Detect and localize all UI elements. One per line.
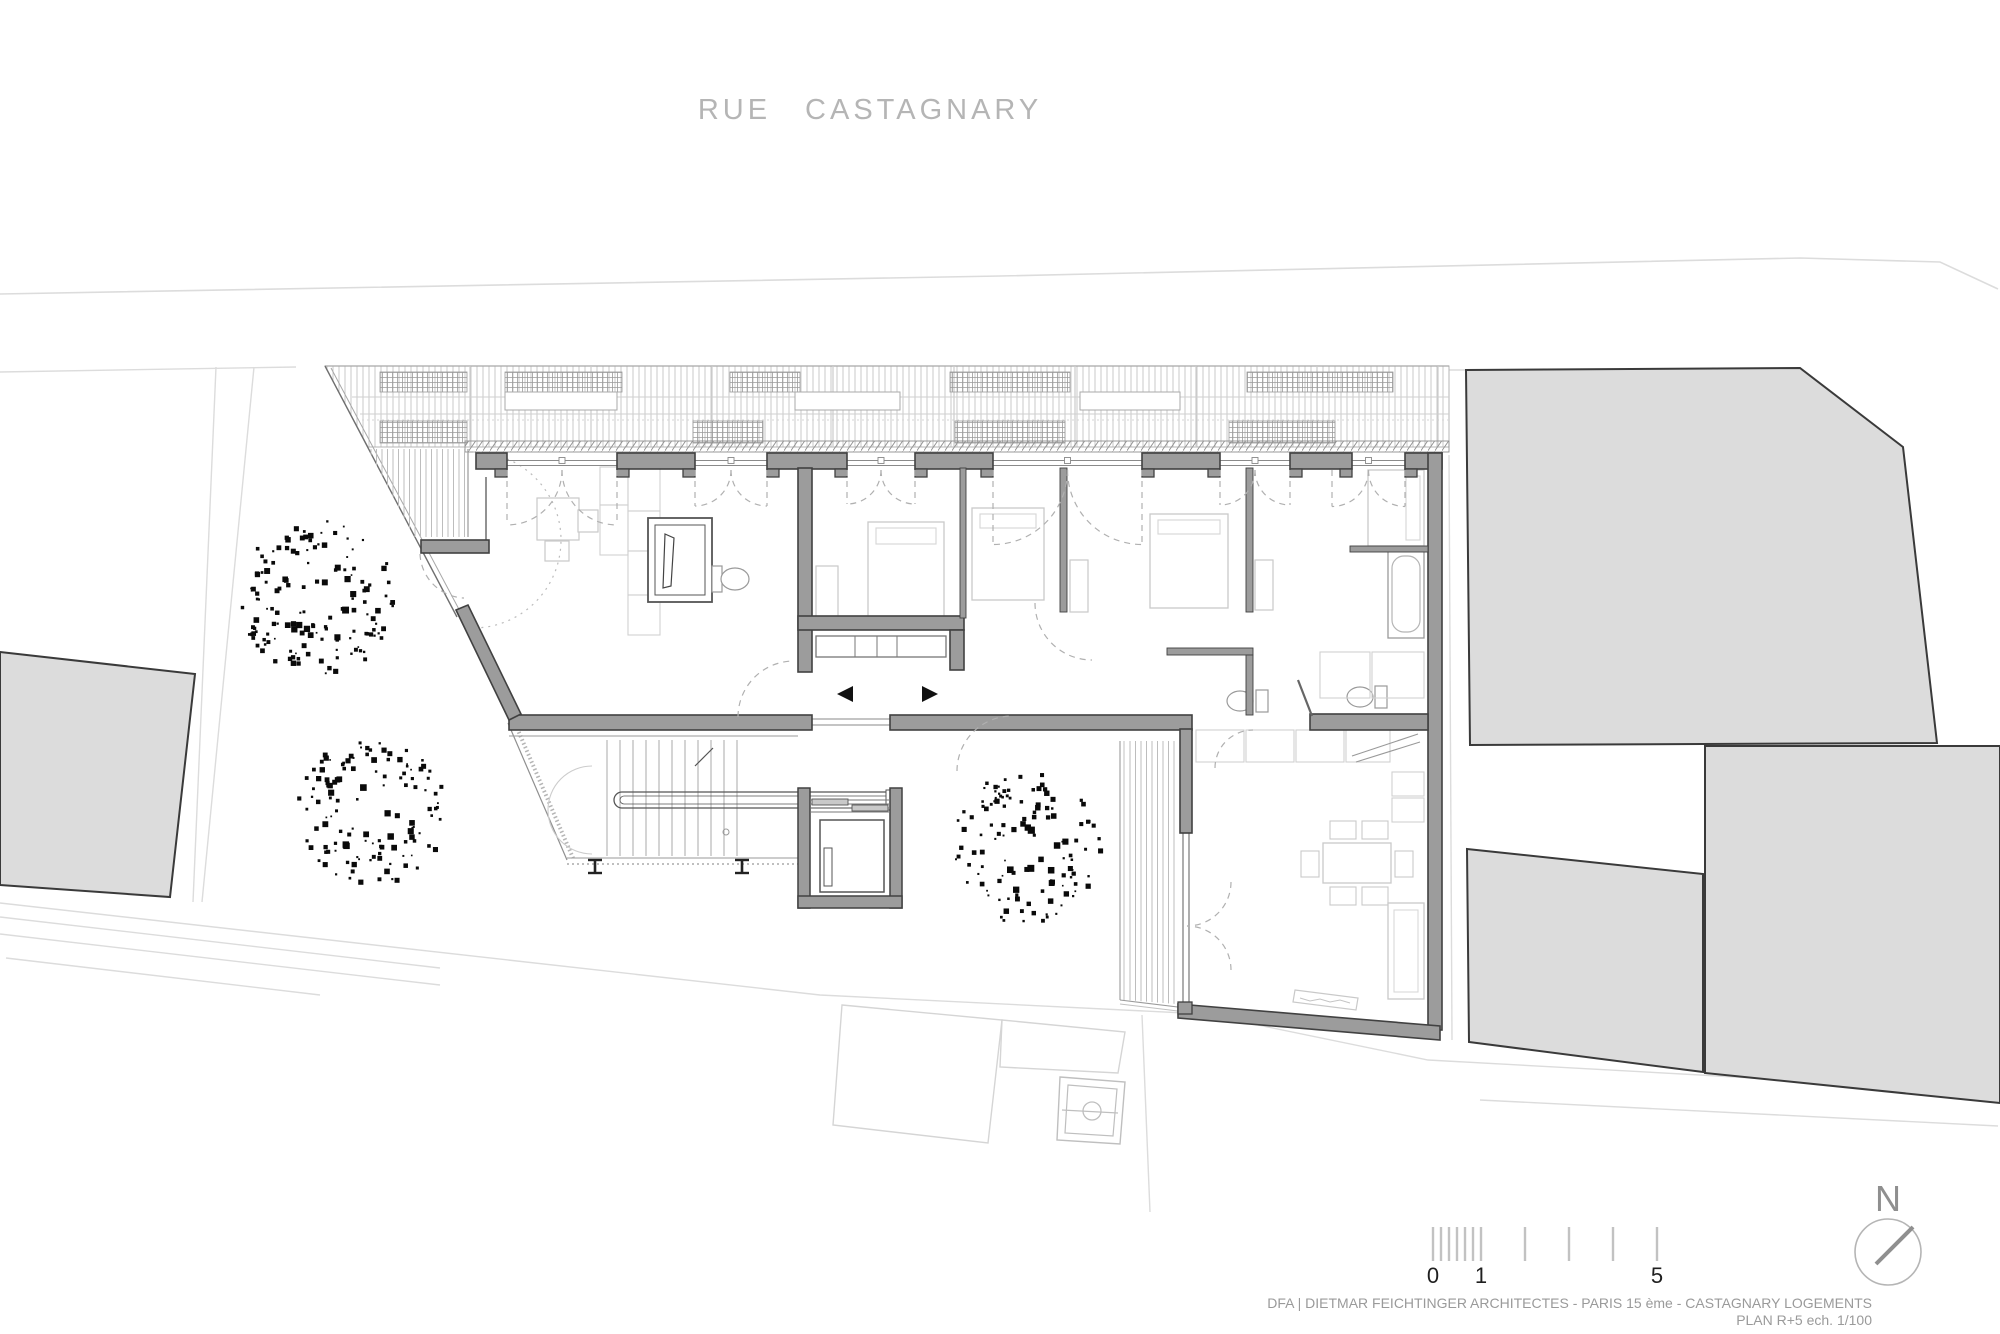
window-lines — [486, 458, 1405, 1007]
street-word-rue: RUE — [698, 94, 771, 127]
courtyard-outlines — [833, 1005, 1125, 1144]
title-block: DFA | DIETMAR FEICHTINGER ARCHITECTES - … — [1267, 1295, 1872, 1329]
street-word-castagnary: CASTAGNARY — [805, 94, 1042, 127]
floor-plan-sheet: RUE CASTAGNARY DFA | DIETMAR FEICHTINGER… — [0, 0, 2000, 1334]
scale-label-0: 0 — [1427, 1263, 1439, 1289]
title-line-2: PLAN R+5 ech. 1/100 — [1267, 1312, 1872, 1329]
furniture — [473, 452, 1424, 1010]
scale-label-5: 5 — [1651, 1263, 1663, 1289]
floor-plan-drawing — [0, 0, 2000, 1334]
elevator — [798, 788, 902, 908]
corridor-direction-arrows — [837, 686, 938, 702]
scale-bar — [1433, 1227, 1657, 1261]
title-line-1: DFA | DIETMAR FEICHTINGER ARCHITECTES - … — [1267, 1295, 1872, 1312]
scale-label-1: 1 — [1475, 1263, 1487, 1289]
street-name-label: RUE CASTAGNARY — [660, 94, 1080, 127]
north-label: N — [1856, 1178, 1920, 1220]
north-arrow-icon — [1855, 1219, 1921, 1285]
